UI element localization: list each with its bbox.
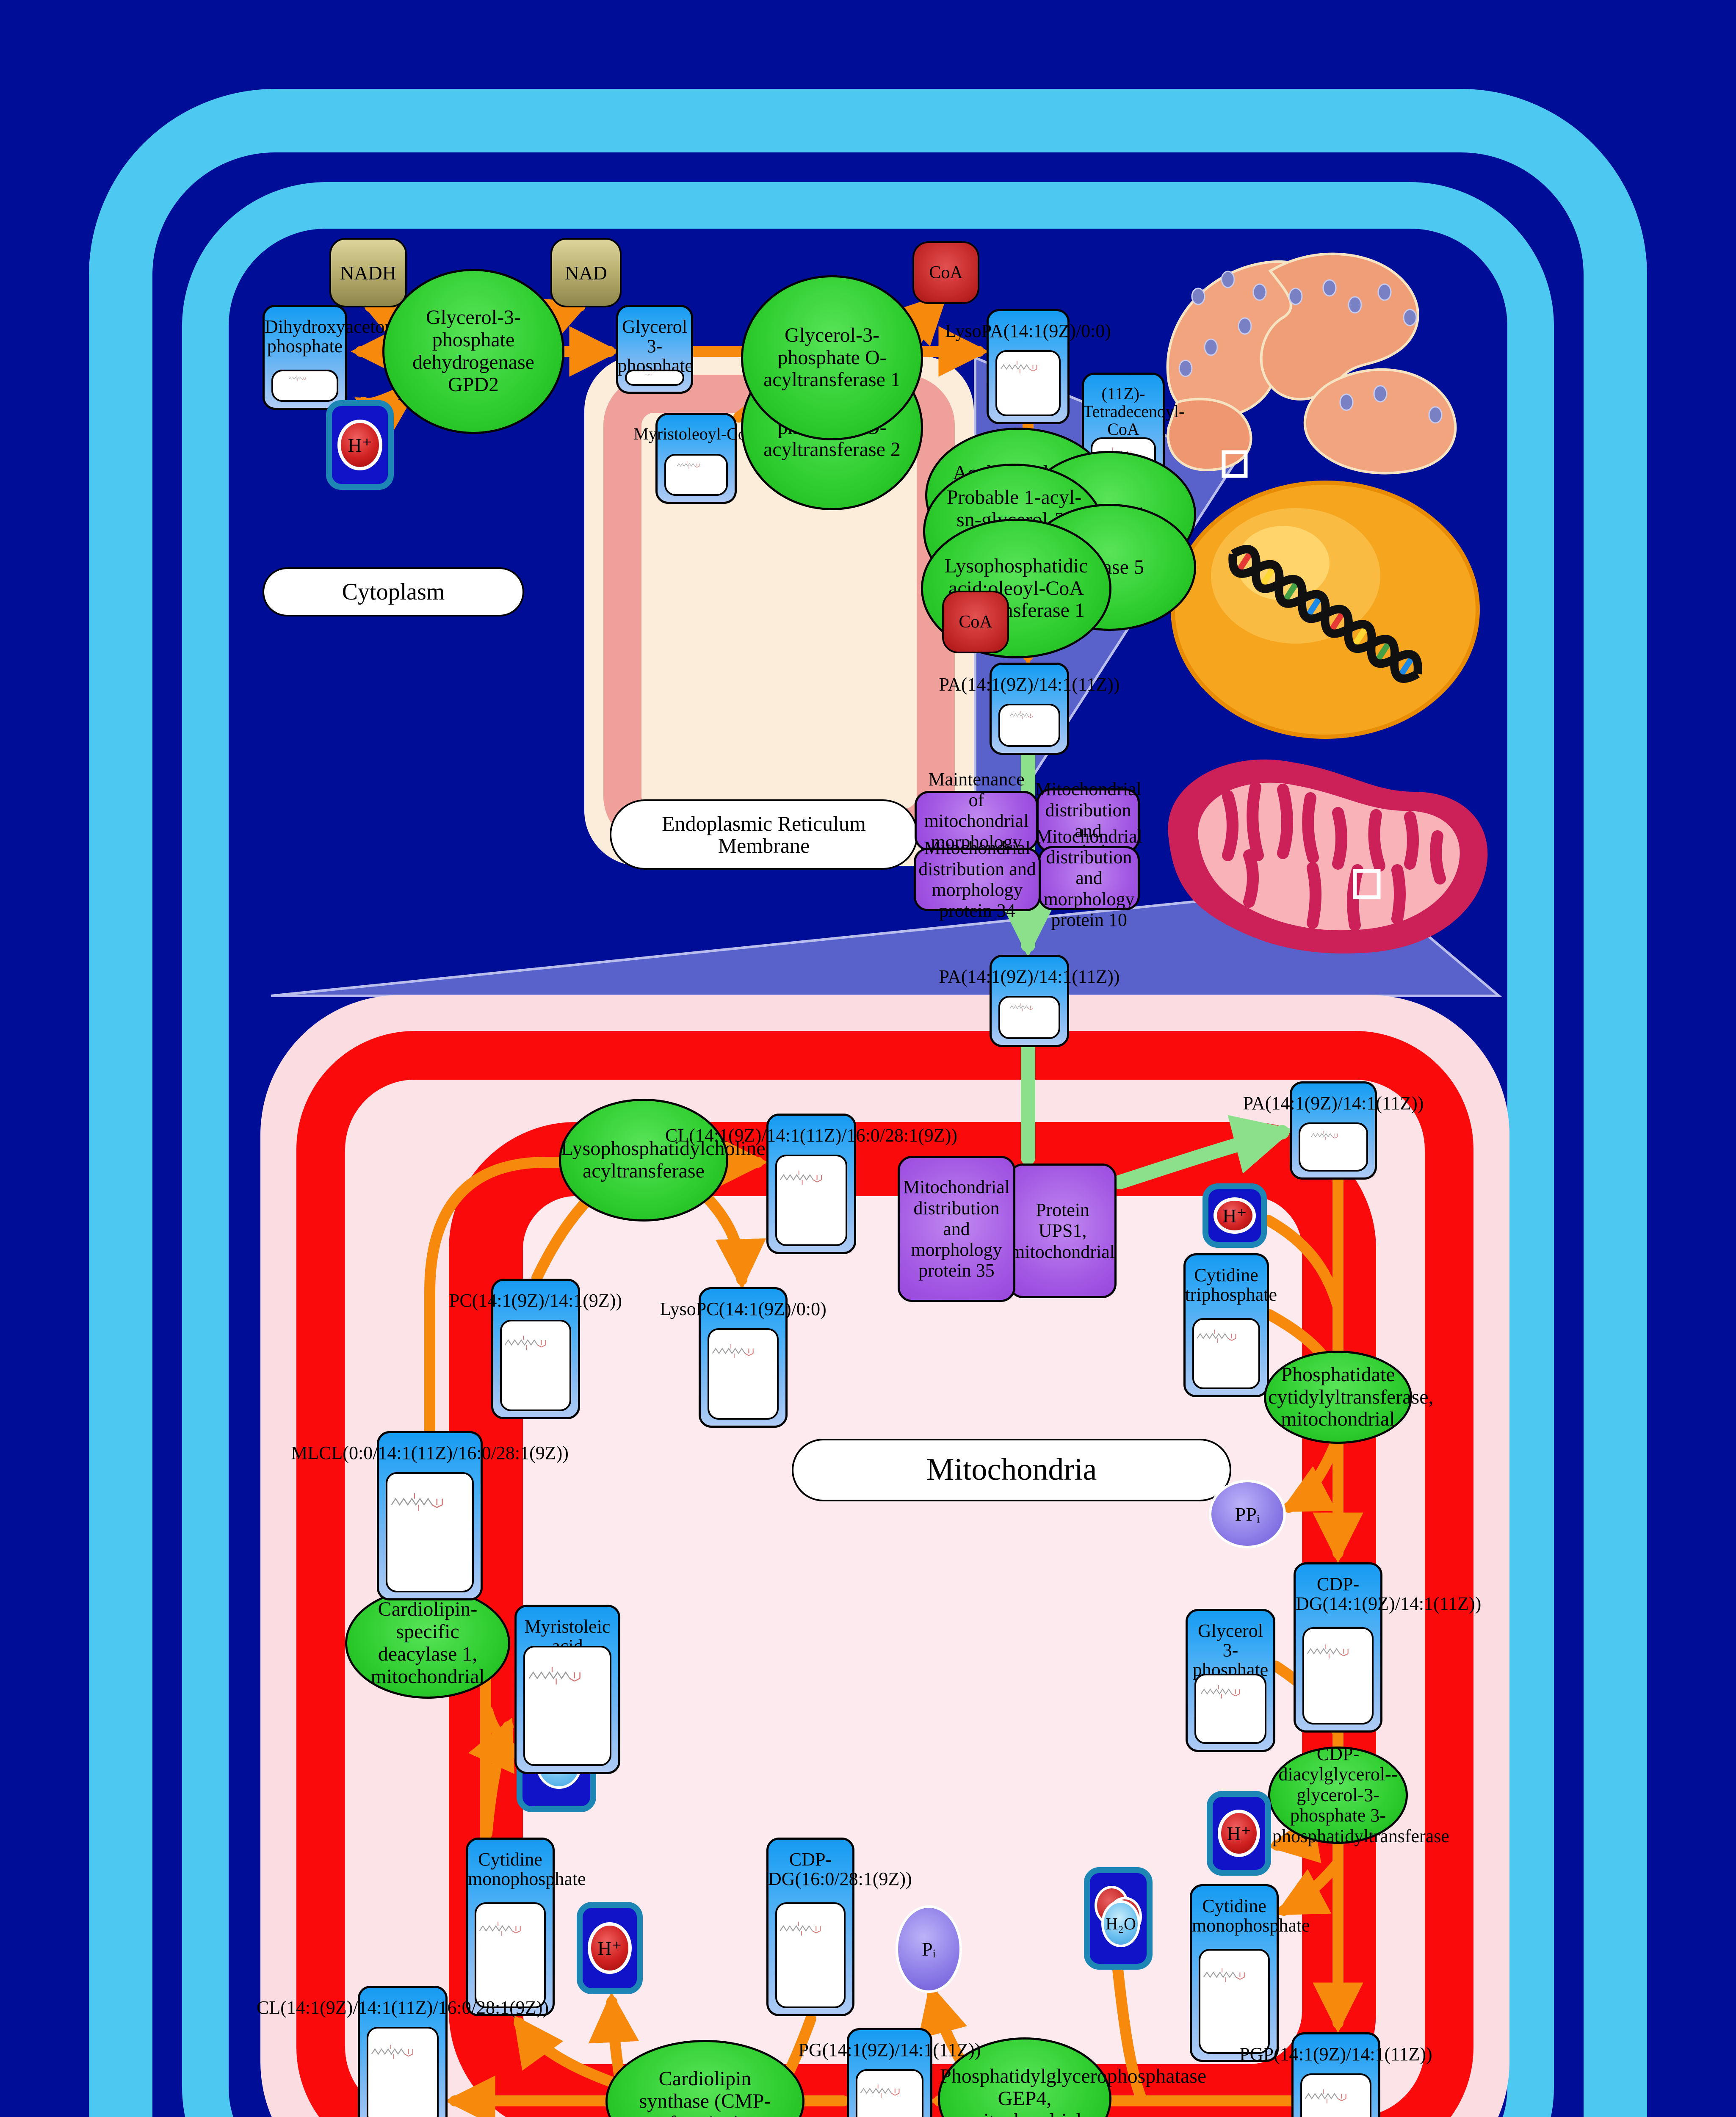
structure-thumbnail [1194, 1320, 1246, 1351]
metabolite-pa-intermembrane[interactable]: PA(14:1(9Z)/14:1(11Z)) [990, 955, 1069, 1047]
structure-thumbnail [777, 1904, 830, 1951]
enzyme-cardiolipin-deacylase[interactable]: Cardiolipin-specific deacylase 1, mitoch… [345, 1588, 510, 1699]
structure-thumbnail [273, 371, 324, 384]
metabolite-lysopc[interactable]: LysoPC(14:1(9Z)/0:0) [699, 1287, 788, 1428]
protein-mdm10[interactable]: Mitochondrial distribution and morpholog… [1038, 846, 1140, 910]
metabolite-pgp[interactable]: PGP(14:1(9Z)/14:1(11Z)) [1291, 2032, 1380, 2117]
structure-thumbnail [666, 456, 714, 473]
structure-thumbnail [1000, 998, 1047, 1016]
enzyme-phosphatidate-cytidylyltransferase[interactable]: Phosphatidate cytidylyltransferase, mito… [1264, 1351, 1412, 1444]
structure-thumbnail [525, 1647, 593, 1701]
enzyme-gpat1[interactable]: Glycerol-3-phosphate O-acyltransferase 1 [741, 275, 923, 440]
structure-thumbnail [476, 1904, 531, 1951]
metabolite-ctp[interactable]: Cytidine triphosphate [1183, 1253, 1269, 1397]
mitochondria-label: Mitochondria [792, 1439, 1231, 1501]
h2o-badge-gep4[interactable]: H₂O [1084, 1867, 1153, 1970]
metabolite-pa-mito[interactable]: PA(14:1(9Z)/14:1(11Z)) [1290, 1081, 1377, 1180]
structure-thumbnail [857, 2071, 909, 2109]
structure-thumbnail [1304, 1629, 1358, 1672]
ppi-badge[interactable]: PPᵢ [1209, 1480, 1286, 1548]
metabolite-pg[interactable]: PG(14:1(9Z)/14:1(11Z)) [847, 2028, 932, 2117]
er-membrane-label: Endoplasmic Reticulum Membrane [610, 799, 918, 870]
protein-mdm35[interactable]: Mitochondrial distribution and morpholog… [898, 1156, 1015, 1302]
h-plus-badge-cytoplasm[interactable]: H⁺ [326, 400, 394, 490]
protein-ups1[interactable]: Protein UPS1, mitochondrial [1009, 1164, 1117, 1298]
metabolite-g3p[interactable]: Glycerol 3-phosphate [616, 305, 693, 394]
metabolite-myristoleoyl-coa[interactable]: Myristoleoyl-CoA [655, 413, 737, 504]
structure-thumbnail [502, 1321, 556, 1362]
metabolite-cdpdg-mito[interactable]: CDP-DG(14:1(9Z)/14:1(11Z)) [1294, 1562, 1382, 1733]
structure-thumbnail [368, 2029, 423, 2073]
structure-thumbnail [1000, 705, 1047, 724]
metabolite-mlcl[interactable]: MLCL(0:0/14:1(11Z)/16:0/28:1(9Z)) [377, 1431, 483, 1600]
h-plus-badge-pgp[interactable]: H⁺ [1207, 1791, 1271, 1876]
nad-badge[interactable]: NAD [550, 238, 622, 307]
metabolite-cmp-right[interactable]: Cytidine monophosphate [1190, 1884, 1279, 2062]
structure-thumbnail [777, 1156, 832, 1197]
metabolite-pc[interactable]: PC(14:1(9Z)/14:1(9Z)) [491, 1279, 580, 1419]
metabolite-dhap[interactable]: Dihydroxyacetone phosphate [263, 305, 347, 410]
structure-thumbnail [627, 371, 672, 377]
cytoplasm-label: Cytoplasm [263, 567, 524, 616]
structure-thumbnail [387, 1474, 455, 1528]
metabolite-myristoleic-acid[interactable]: Myristoleic acid [514, 1605, 620, 1774]
structure-thumbnail [997, 352, 1047, 381]
h-plus-badge-cls[interactable]: H⁺ [577, 1902, 643, 1994]
coa-badge-1[interactable]: CoA [912, 241, 979, 304]
structure-thumbnail [1302, 2075, 1356, 2116]
pi-badge[interactable]: Pᵢ [896, 1905, 962, 1993]
metabolite-cmp-left[interactable]: Cytidine monophosphate [466, 1838, 555, 2016]
enzyme-gpd2[interactable]: Glycerol-3-phosphate dehydrogenase GPD2 [382, 269, 564, 434]
metabolite-cl-bottom[interactable]: CL(14:1(9Z)/14:1(11Z)/16:0/28:1(9Z)) [358, 1986, 448, 2117]
pathway-diagram: Cytoplasm Endoplasmic Reticulum Membrane… [0, 0, 1736, 2117]
coa-badge-2[interactable]: CoA [942, 591, 1009, 653]
metabolite-cdpdg-16[interactable]: CDP-DG(16:0/28:1(9Z)) [766, 1838, 854, 2016]
metabolite-cl-top[interactable]: CL(14:1(9Z)/14:1(11Z)/16:0/28:1(9Z)) [766, 1114, 856, 1254]
nadh-badge[interactable]: NADH [329, 238, 407, 307]
h-plus-badge-ctp[interactable]: H⁺ [1202, 1183, 1267, 1248]
structure-thumbnail [709, 1330, 763, 1371]
structure-thumbnail [1300, 1124, 1353, 1145]
enzyme-lpcat[interactable]: Lysophosphatidylcholine acyltransferase [559, 1099, 728, 1222]
metabolite-lysopa[interactable]: LysoPA(14:1(9Z)/0:0) [987, 309, 1070, 424]
protein-mdm34[interactable]: Mitochondrial distribution and morpholog… [914, 848, 1041, 911]
structure-thumbnail [1200, 1951, 1255, 1997]
metabolite-pa-er[interactable]: PA(14:1(9Z)/14:1(11Z)) [990, 663, 1069, 755]
metabolite-g3p-mito[interactable]: Glycerol 3-phosphate [1186, 1609, 1275, 1752]
structure-thumbnail [1196, 1675, 1251, 1706]
enzyme-cdp-dag-g3p-phosphatidyltransferase[interactable]: CDP-diacylglycerol--glycerol-3-phosphate… [1268, 1747, 1408, 1844]
